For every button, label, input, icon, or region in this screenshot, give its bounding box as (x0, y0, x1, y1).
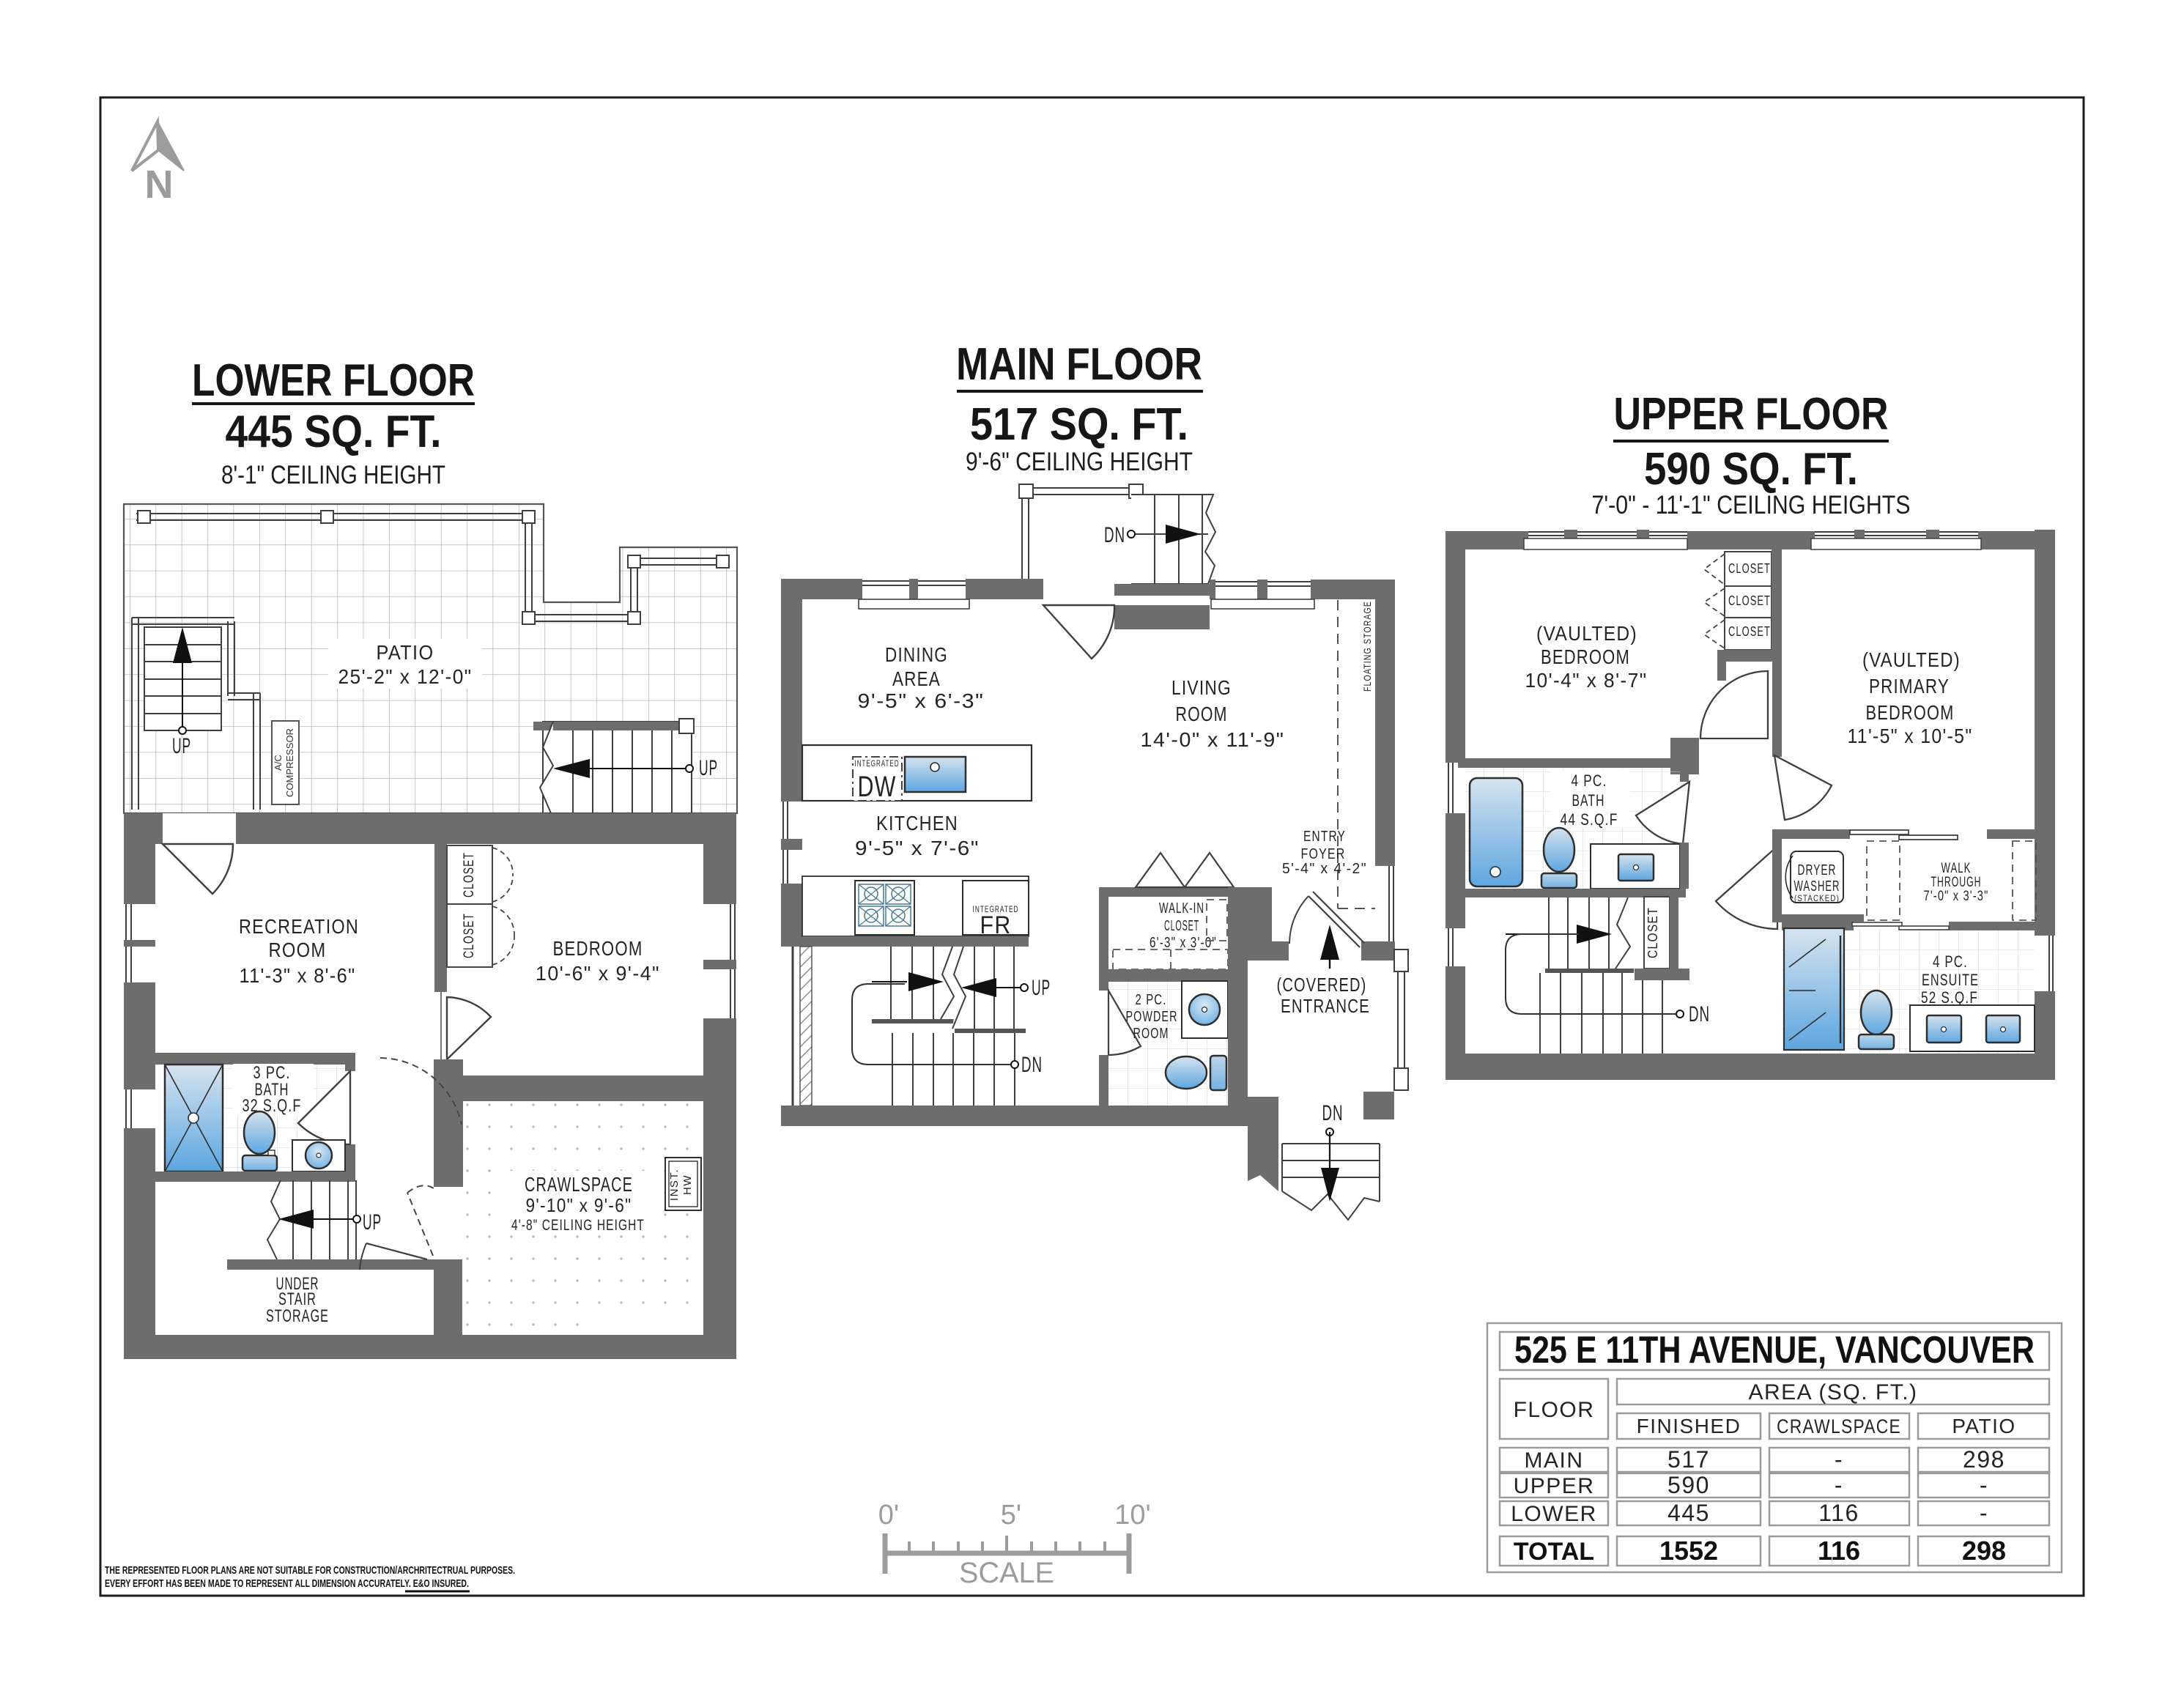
svg-text:RECREATION: RECREATION (239, 915, 359, 938)
svg-text:-: - (1835, 1472, 1843, 1498)
svg-text:AREA (SQ. FT.): AREA (SQ. FT.) (1748, 1380, 1917, 1404)
svg-text:ENTRANCE: ENTRANCE (1281, 995, 1370, 1017)
svg-text:6'-3" x 3'-0": 6'-3" x 3'-0" (1150, 935, 1217, 951)
svg-text:(VAULTED): (VAULTED) (1862, 648, 1961, 671)
svg-text:10'-4" x 8'-7": 10'-4" x 8'-7" (1525, 669, 1648, 692)
svg-text:10': 10' (1114, 1500, 1151, 1530)
svg-text:116: 116 (1818, 1500, 1859, 1526)
svg-text:14'-0" x 11'-9": 14'-0" x 11'-9" (1141, 728, 1285, 751)
svg-text:(STACKED): (STACKED) (1794, 893, 1840, 903)
svg-text:A/C: A/C (273, 755, 284, 771)
svg-text:9'-6" CEILING HEIGHT: 9'-6" CEILING HEIGHT (966, 448, 1193, 476)
svg-text:HW: HW (681, 1174, 694, 1195)
svg-text:KITCHEN: KITCHEN (876, 812, 958, 834)
svg-text:-: - (1835, 1446, 1843, 1473)
svg-text:4 PC.: 4 PC. (1933, 952, 1968, 971)
svg-text:FLOATING STORAGE: FLOATING STORAGE (1361, 601, 1373, 692)
svg-text:BEDROOM: BEDROOM (1866, 701, 1955, 724)
svg-text:9'-5" x 6'-3": 9'-5" x 6'-3" (858, 689, 985, 712)
svg-text:FR: FR (980, 911, 1012, 939)
svg-text:ENTRY: ENTRY (1303, 829, 1346, 845)
svg-text:0': 0' (878, 1500, 899, 1530)
svg-text:UP: UP (1032, 976, 1051, 1000)
svg-text:DRYER: DRYER (1798, 862, 1837, 878)
svg-text:7'-0" - 11'-1" CEILING HEIGHTS: 7'-0" - 11'-1" CEILING HEIGHTS (1592, 491, 1911, 519)
svg-text:THROUGH: THROUGH (1931, 875, 1982, 890)
svg-text:MAIN: MAIN (1525, 1448, 1584, 1473)
svg-text:BEDROOM: BEDROOM (553, 937, 643, 960)
svg-text:LOWER: LOWER (1511, 1502, 1597, 1526)
svg-text:N: N (145, 163, 174, 207)
svg-text:POWDER: POWDER (1126, 1009, 1178, 1025)
svg-text:ROOM: ROOM (1133, 1026, 1169, 1042)
svg-text:CLOSET: CLOSET (462, 913, 477, 958)
svg-text:8'-1" CEILING HEIGHT: 8'-1" CEILING HEIGHT (221, 461, 445, 489)
svg-text:11'-5" x 10'-5": 11'-5" x 10'-5" (1848, 725, 1973, 747)
svg-text:EVERY EFFORT HAS BEEN MADE TO: EVERY EFFORT HAS BEEN MADE TO REPRESENT … (105, 1577, 469, 1590)
svg-text:FLOOR: FLOOR (1514, 1398, 1595, 1422)
svg-text:44 S.Q.F: 44 S.Q.F (1561, 810, 1618, 829)
svg-text:517 SQ. FT.: 517 SQ. FT. (970, 399, 1188, 450)
svg-text:CRAWLSPACE: CRAWLSPACE (525, 1173, 633, 1196)
svg-text:FOYER: FOYER (1301, 846, 1346, 862)
svg-text:CRAWLSPACE: CRAWLSPACE (1777, 1415, 1901, 1437)
svg-text:BEDROOM: BEDROOM (1541, 645, 1630, 668)
svg-text:STORAGE: STORAGE (266, 1306, 329, 1326)
svg-text:PATIO: PATIO (1952, 1415, 2015, 1437)
svg-text:DN: DN (1689, 1002, 1710, 1026)
svg-text:445: 445 (1667, 1500, 1710, 1526)
svg-text:ROOM: ROOM (1176, 703, 1228, 725)
svg-text:517: 517 (1667, 1446, 1710, 1473)
svg-text:UPPER FLOOR: UPPER FLOOR (1614, 389, 1889, 440)
svg-text:ROOM: ROOM (269, 939, 327, 961)
svg-text:LIVING: LIVING (1171, 676, 1232, 699)
svg-text:4 PC.: 4 PC. (1572, 771, 1607, 790)
svg-text:5': 5' (1001, 1500, 1021, 1530)
svg-text:DN: DN (1021, 1053, 1043, 1077)
svg-text:CLOSET: CLOSET (1728, 561, 1771, 576)
svg-text:DINING: DINING (885, 643, 948, 666)
svg-text:WALK-IN: WALK-IN (1159, 900, 1204, 917)
svg-text:MAIN FLOOR: MAIN FLOOR (956, 339, 1202, 390)
svg-text:LOWER FLOOR: LOWER FLOOR (192, 355, 475, 406)
svg-text:(COVERED): (COVERED) (1277, 974, 1367, 996)
svg-text:298: 298 (1963, 1446, 2005, 1473)
svg-text:INST.: INST. (668, 1169, 681, 1201)
svg-text:-: - (1980, 1500, 1988, 1526)
svg-text:CLOSET: CLOSET (1728, 624, 1771, 639)
svg-text:(VAULTED): (VAULTED) (1536, 622, 1637, 645)
svg-text:SCALE: SCALE (959, 1557, 1054, 1589)
svg-text:UP: UP (172, 734, 191, 758)
svg-text:10'-6" x 9'-4": 10'-6" x 9'-4" (536, 962, 660, 985)
svg-text:DW: DW (858, 771, 897, 803)
svg-text:UP: UP (699, 756, 718, 780)
svg-text:CLOSET: CLOSET (462, 852, 477, 897)
svg-text:11'-3" x 8'-6": 11'-3" x 8'-6" (240, 964, 356, 987)
svg-text:2 PC.: 2 PC. (1136, 992, 1167, 1008)
svg-text:BATH: BATH (1572, 791, 1605, 810)
svg-text:THE REPRESENTED FLOOR PLANS AR: THE REPRESENTED FLOOR PLANS ARE NOT SUIT… (105, 1564, 515, 1577)
svg-text:298: 298 (1962, 1536, 2006, 1566)
svg-text:9'-5" x 7'-6": 9'-5" x 7'-6" (855, 837, 980, 859)
svg-text:UP: UP (363, 1210, 382, 1234)
svg-text:CLOSET: CLOSET (1164, 918, 1199, 934)
svg-text:UPPER: UPPER (1514, 1474, 1595, 1498)
svg-text:-: - (1980, 1472, 1988, 1498)
svg-text:PRIMARY: PRIMARY (1869, 675, 1950, 697)
svg-text:COMPRESSOR: COMPRESSOR (284, 728, 295, 797)
svg-text:DN: DN (1104, 523, 1125, 547)
svg-text:AREA: AREA (892, 667, 941, 690)
svg-text:FINISHED: FINISHED (1637, 1415, 1741, 1437)
svg-text:32 S.Q.F: 32 S.Q.F (243, 1096, 302, 1116)
svg-text:590: 590 (1667, 1472, 1710, 1498)
svg-text:5'-4" x 4'-2": 5'-4" x 4'-2" (1282, 861, 1367, 877)
svg-text:7'-0" x 3'-3": 7'-0" x 3'-3" (1924, 889, 1989, 904)
svg-text:590 SQ. FT.: 590 SQ. FT. (1644, 444, 1858, 495)
svg-text:CLOSET: CLOSET (1728, 593, 1771, 608)
svg-text:CLOSET: CLOSET (1646, 907, 1660, 958)
svg-text:525 E 11TH AVENUE, VANCOUVER: 525 E 11TH AVENUE, VANCOUVER (1514, 1329, 2035, 1371)
svg-text:116: 116 (1818, 1536, 1860, 1566)
svg-text:25'-2" x 12'-0": 25'-2" x 12'-0" (338, 665, 473, 688)
svg-text:9'-10" x 9'-6": 9'-10" x 9'-6" (526, 1194, 632, 1216)
svg-text:WASHER: WASHER (1794, 878, 1840, 895)
svg-text:ENSUITE: ENSUITE (1922, 971, 1979, 989)
svg-text:445 SQ. FT.: 445 SQ. FT. (226, 407, 442, 457)
svg-text:1552: 1552 (1659, 1536, 1718, 1566)
svg-text:INTEGRATED: INTEGRATED (855, 758, 900, 769)
svg-text:4'-8" CEILING HEIGHT: 4'-8" CEILING HEIGHT (511, 1217, 645, 1234)
svg-text:TOTAL: TOTAL (1514, 1538, 1594, 1566)
svg-text:52 S.Q.F: 52 S.Q.F (1921, 988, 1978, 1007)
svg-text:DN: DN (1322, 1101, 1344, 1125)
svg-text:PATIO: PATIO (377, 641, 434, 664)
svg-text:WALK: WALK (1941, 861, 1972, 876)
